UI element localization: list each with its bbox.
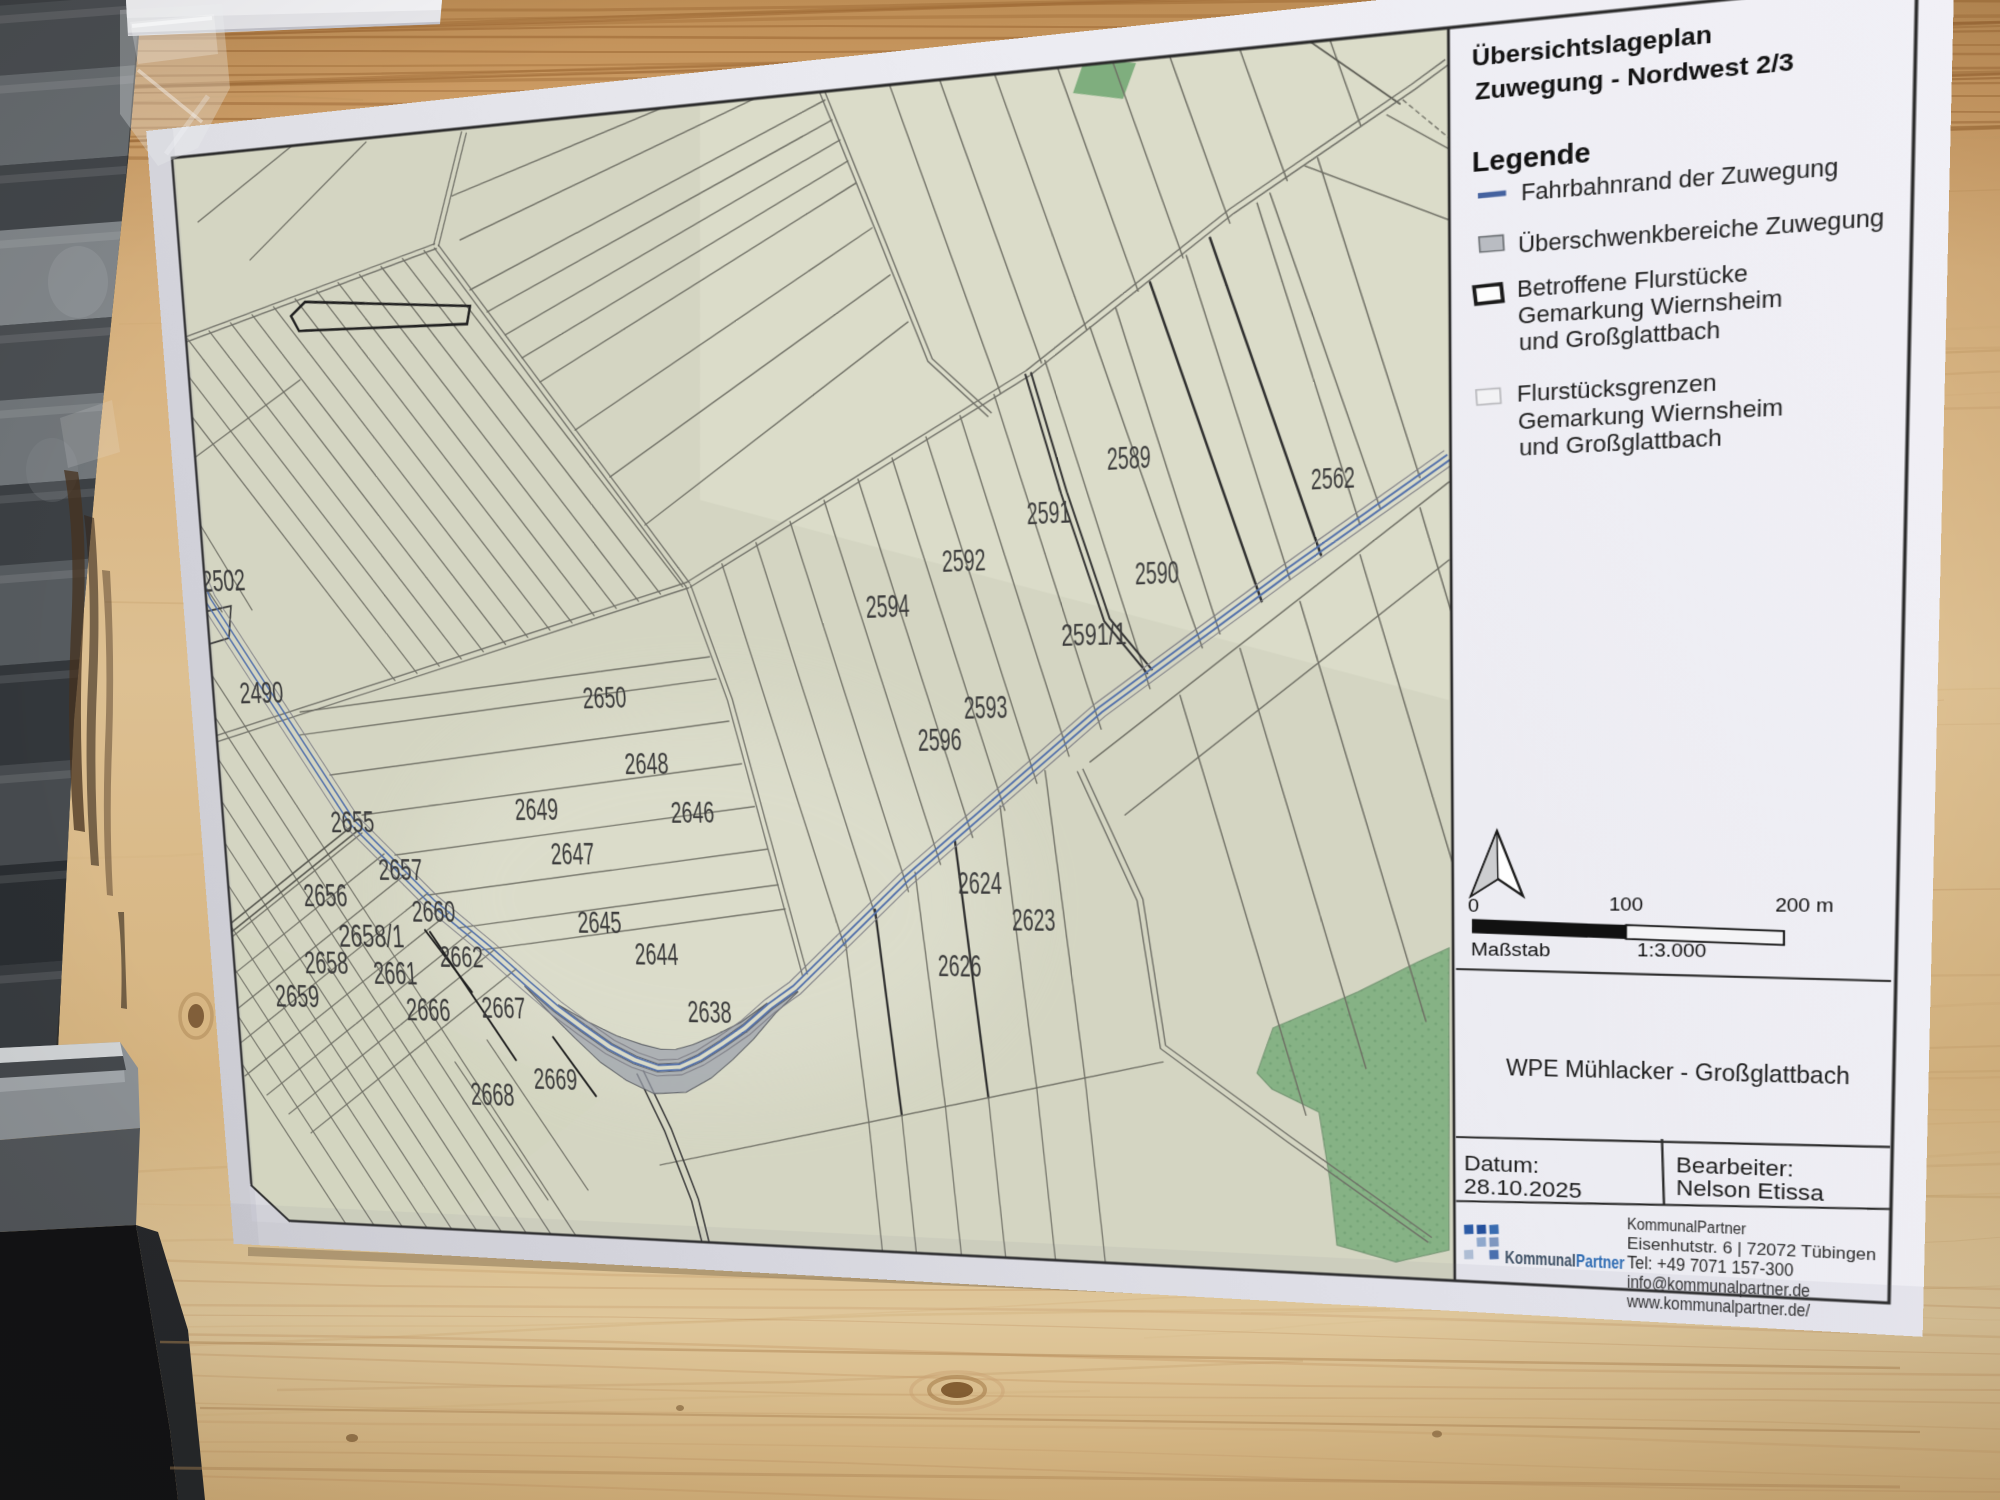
svg-text:2645: 2645: [577, 906, 623, 941]
svg-text:2656: 2656: [302, 878, 348, 913]
svg-text:200 m: 200 m: [1775, 896, 1834, 917]
svg-text:2658: 2658: [303, 946, 349, 981]
svg-text:2662: 2662: [438, 939, 484, 974]
svg-text:Überschwenkbereiche Zuwegung: Überschwenkbereiche Zuwegung: [1518, 205, 1885, 258]
svg-text:WPE Mühlacker - Großglattbach: WPE Mühlacker - Großglattbach: [1506, 1054, 1850, 1090]
svg-text:2592: 2592: [941, 542, 986, 579]
svg-text:2644: 2644: [634, 938, 679, 973]
svg-text:2590: 2590: [1134, 555, 1179, 592]
svg-text:2593: 2593: [963, 689, 1008, 725]
svg-text:2562: 2562: [1311, 461, 1355, 497]
svg-text:2647: 2647: [550, 837, 596, 872]
svg-text:2650: 2650: [582, 681, 628, 716]
svg-text:2659: 2659: [274, 979, 320, 1014]
svg-text:Maßstab: Maßstab: [1471, 939, 1550, 961]
svg-text:0: 0: [1468, 896, 1479, 917]
svg-text:2596: 2596: [917, 723, 962, 758]
svg-text:2657: 2657: [377, 853, 423, 888]
svg-text:2624: 2624: [957, 865, 1002, 900]
svg-text:2668: 2668: [469, 1076, 515, 1112]
svg-text:2626: 2626: [937, 949, 982, 984]
svg-text:2660: 2660: [411, 894, 457, 929]
svg-text:2591/1: 2591/1: [1061, 616, 1127, 652]
svg-text:2658/1: 2658/1: [337, 919, 405, 955]
svg-text:100: 100: [1609, 895, 1643, 915]
svg-text:1:3.000: 1:3.000: [1637, 939, 1707, 961]
svg-text:2655: 2655: [329, 804, 375, 839]
svg-text:2623: 2623: [1011, 902, 1056, 938]
svg-text:Nelson Etissa: Nelson Etissa: [1676, 1175, 1825, 1205]
svg-text:2638: 2638: [687, 995, 733, 1030]
svg-text:2589: 2589: [1106, 440, 1151, 478]
svg-text:2661: 2661: [372, 956, 418, 992]
svg-text:28.10.2025: 28.10.2025: [1464, 1175, 1582, 1203]
svg-text:2594: 2594: [865, 588, 910, 624]
svg-text:2649: 2649: [514, 793, 559, 828]
svg-text:2646: 2646: [670, 796, 715, 830]
svg-text:2591: 2591: [1026, 494, 1071, 531]
svg-text:2490: 2490: [238, 676, 284, 711]
svg-text:2669: 2669: [533, 1061, 579, 1097]
svg-text:2666: 2666: [405, 992, 451, 1028]
svg-text:Legende: Legende: [1472, 136, 1591, 178]
svg-text:2667: 2667: [480, 990, 526, 1025]
svg-text:2648: 2648: [624, 747, 670, 782]
